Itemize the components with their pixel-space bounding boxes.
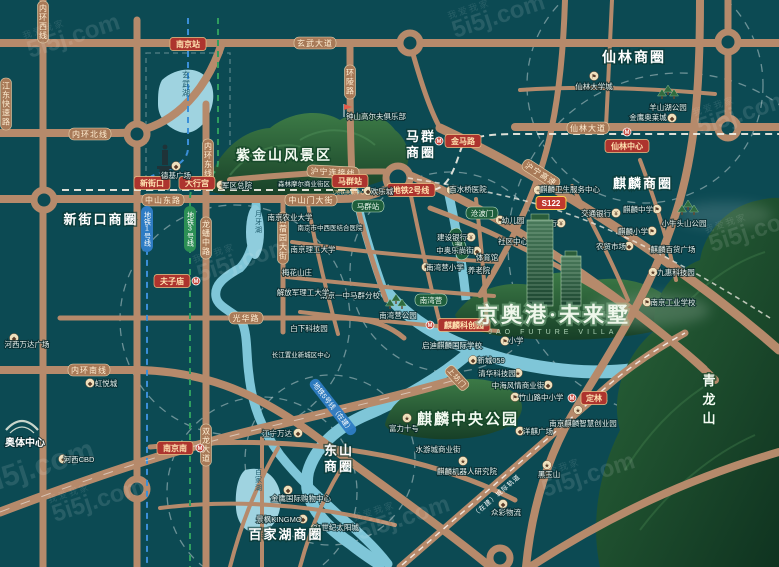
poi-label: 洋麒广场 (523, 426, 553, 436)
svg-text:◆: ◆ (88, 382, 93, 388)
svg-text:◆: ◆ (518, 430, 523, 436)
mall-icon: ◆ (294, 429, 303, 438)
svg-text:光华路: 光华路 (233, 313, 260, 323)
poi-label: 解放军理工大学 (277, 287, 330, 297)
poi-label: 中海风情商业街 (492, 380, 545, 390)
road-label: 光华路 (229, 312, 263, 324)
svg-text:S122: S122 (542, 199, 561, 208)
poi-label: 体育馆 (476, 252, 499, 262)
property-name: 京奥港·未来墅 (477, 303, 631, 327)
metro-line-2-badge: 地铁2号线 (387, 184, 435, 197)
poi-label: 麒麟小学 (618, 226, 648, 236)
poi-label: 麒麟中学 (623, 204, 653, 214)
poi-label: 清华科技园 (478, 368, 516, 378)
metro-line-3-label: 地铁3号线 (184, 206, 196, 252)
green-label: 南湾营 (415, 294, 447, 306)
location-map: 玄武大道 内环北线 中山东路 中山门大街 光华路 内环南线 仙林大道 沪宁连接线… (0, 0, 779, 567)
metro-icon: M (437, 139, 442, 145)
poi-label: 欢乐城 (371, 186, 394, 196)
bank-icon: ¥ (467, 233, 476, 242)
bank-icon: ¥ (557, 219, 566, 228)
svg-text:仙林中心: 仙林中心 (611, 141, 643, 151)
svg-text:◆: ◆ (471, 359, 476, 365)
svg-text:⚑: ⚑ (512, 395, 517, 402)
road-label: 江东快速路 (1, 78, 12, 130)
poi-label: 虹悦城 (95, 378, 118, 388)
poi-label: 军区总院 (222, 180, 252, 190)
metro-icon: M (570, 396, 575, 402)
poi-label: 富力十号 (389, 423, 419, 433)
svg-text:环陵路: 环陵路 (346, 69, 355, 96)
svg-text:◆: ◆ (627, 245, 632, 251)
mall-icon: ◆ (668, 114, 677, 123)
district-label-qilin: 麒麟商圈 (613, 176, 673, 191)
svg-text:⚑: ⚑ (502, 339, 507, 346)
svg-text:仙林大道: 仙林大道 (570, 123, 606, 133)
poi-label: 建设银行 (437, 232, 467, 242)
svg-text:★: ★ (460, 459, 465, 466)
district-label-dongshan: 商圈 (324, 459, 354, 474)
poi-label: 九惠科技园 (657, 267, 695, 277)
poi-label: 小学 (509, 335, 524, 345)
poi-label: 南湾营小学 (426, 262, 464, 272)
poi-label: 小牛头山公园 (662, 218, 707, 228)
road-label: 内环东线 (203, 139, 214, 181)
star-icon: ★ (459, 457, 468, 466)
poi-label: 百水桥医院 (449, 184, 487, 194)
svg-text:内环南线: 内环南线 (71, 365, 107, 375)
svg-text:南京南: 南京南 (163, 443, 187, 453)
lake-label-baijia: 百家湖 (255, 468, 263, 492)
star-icon: ★ (403, 414, 412, 423)
poi-label: 麒麟卫生服务中心 (540, 184, 600, 194)
svg-text:⚑: ⚑ (644, 300, 649, 307)
svg-text:◆: ◆ (670, 117, 675, 123)
area-label-qinglongshan: 青龙山 (701, 373, 716, 431)
road-label: 内环北线 (69, 128, 111, 140)
svg-text:地铁3号线: 地铁3号线 (187, 211, 195, 247)
svg-text:◆: ◆ (296, 432, 301, 438)
poi-label: 竹山路中小学 (519, 392, 564, 402)
area-label-zijinshan: 紫金山风景区 (236, 147, 332, 163)
svg-text:金马路: 金马路 (450, 136, 476, 146)
poi-label-aoti: 奥体中心 (5, 436, 45, 449)
svg-text:内环东线: 内环东线 (204, 141, 213, 178)
poi-label: 南京农业大学 (268, 212, 313, 222)
poi-label: 德基广场 (161, 170, 191, 180)
poi-label: 社区中心 (498, 236, 528, 246)
poi-label: 新城059 (477, 355, 505, 365)
poi-label: 养老院 (468, 265, 491, 275)
svg-text:马群站: 马群站 (357, 201, 380, 211)
svg-text:内环北线: 内环北线 (72, 129, 108, 139)
district-label-maqun: 马群 (406, 129, 436, 144)
svg-text:★: ★ (404, 416, 409, 423)
mall-icon: ◆ (469, 356, 478, 365)
svg-text:夫子庙: 夫子庙 (159, 276, 184, 286)
svg-text:★: ★ (650, 270, 655, 277)
svg-text:中山东路: 中山东路 (145, 195, 181, 205)
metro-icon: M (428, 323, 433, 329)
station-nanjing: 南京站 (170, 38, 206, 51)
school-icon: ⚑ (648, 227, 657, 236)
district-label-maqun: 商圈 (406, 145, 436, 160)
road-label: 环陵路 (345, 65, 356, 99)
poi-label: 南京理工大学 (291, 244, 336, 254)
metro-icon: M (198, 446, 203, 452)
district-label-baijiahu: 百家湖商圈 (248, 527, 323, 542)
property-name-en: JAO FUTURE VILLA (489, 329, 618, 336)
poi-label: 南京麒麟智慧创业园 (549, 418, 617, 428)
poi-label: 羊山湖公园 (649, 102, 687, 112)
poi-label: 麒麟百货广场 (651, 244, 696, 254)
poi-label: 长江置业新城区中心 (272, 350, 331, 359)
metro-line-1-label: 地铁1号线 (141, 206, 153, 252)
svg-text:◆: ◆ (546, 384, 551, 390)
lake-label-yueya: 月牙湖 (255, 210, 263, 234)
mall-icon: ◆ (172, 162, 181, 171)
svg-text:★: ★ (515, 371, 520, 378)
poi-label: 中奥乐尚街 (436, 245, 474, 255)
road-label: 仙林大道 (567, 122, 609, 134)
poi-label: 江宁万达 (262, 428, 292, 438)
svg-text:★: ★ (575, 408, 580, 415)
road-label: 中山东路 (142, 194, 184, 206)
bank-icon: ¥ (612, 209, 621, 218)
svg-text:定林: 定林 (585, 393, 602, 403)
svg-text:南湾营: 南湾营 (420, 295, 443, 305)
svg-text:沧波门: 沧波门 (471, 208, 494, 218)
map-canvas: 玄武大道 内环北线 中山东路 中山门大街 光华路 内环南线 仙林大道 沪宁连接线… (0, 0, 779, 567)
metro-icon: M (194, 279, 199, 285)
area-label-qilin-park: 麒麟中央公园 (417, 410, 519, 428)
poi-label: 金鹰国际购物中心 (271, 493, 331, 503)
svg-text:地铁1号线: 地铁1号线 (144, 211, 152, 247)
route-s122-badge: S122 (536, 197, 566, 210)
poi-label: 梅花山庄 (282, 267, 312, 277)
svg-text:中山门大街: 中山门大街 (289, 195, 334, 205)
poi-label: 仙林大学城 (575, 81, 613, 91)
poi-label: 众彩物流 (491, 507, 521, 517)
mall-icon: ◆ (544, 381, 553, 390)
poi-label: 南湾营公园 (379, 310, 417, 320)
district-label-dongshan: 东山 (324, 443, 354, 458)
green-label: 沧波门 (466, 207, 498, 219)
road-label: 内环南线 (68, 364, 110, 376)
svg-text:⚑: ⚑ (591, 74, 596, 81)
poi-label: 水游城商业街 (416, 444, 461, 454)
district-label-xianlin: 仙林商圈 (602, 49, 666, 65)
school-icon: ⚑ (653, 205, 662, 214)
poi-label: 河西万达广场 (5, 339, 50, 349)
road-label-text: 玄武大道 (297, 38, 333, 48)
poi-label: 农贸市场 (596, 241, 626, 251)
poi-label: 钟山高尔夫俱乐部 (346, 111, 406, 121)
green-label: 马群站 (352, 200, 384, 212)
district-label-xinjiekou: 新街口商圈 (63, 212, 138, 227)
svg-text:地铁2号线: 地铁2号线 (393, 185, 429, 195)
school-icon: ⚑ (590, 72, 599, 81)
metro-icon: M (625, 130, 630, 136)
svg-text:马群站: 马群站 (338, 176, 362, 186)
svg-text:⚑: ⚑ (654, 207, 659, 214)
lake-label-xuanwu: 玄武湖 (182, 70, 191, 98)
svg-text:江东快速路: 江东快速路 (2, 82, 11, 127)
svg-text:⚑: ⚑ (649, 229, 654, 236)
poi-label: 麒麟机器人研究院 (437, 466, 497, 476)
poi-label: 交通银行 (581, 208, 611, 218)
svg-text:◆: ◆ (174, 165, 179, 171)
poi-label: 白下科技园 (290, 323, 328, 333)
svg-text:南京站: 南京站 (176, 39, 200, 49)
star-icon: ★ (649, 268, 658, 277)
poi-label: 南京市中西医结合医院 (298, 223, 364, 232)
poi-label: 森林摩尔商业街区 (278, 179, 331, 188)
star-icon: ★ (574, 406, 583, 415)
poi-label: 金鹰奥莱城 (629, 112, 667, 122)
poi-label: 景枫KINGMO (256, 514, 302, 524)
road-label: 玄武大道 (294, 37, 336, 49)
poi-label: 幼儿园 (502, 215, 525, 225)
poi-label: 启迪麒麟国际学校 (422, 340, 482, 350)
mall-icon: ◆ (86, 379, 95, 388)
poi-label: 南京工业学校 (651, 297, 696, 307)
